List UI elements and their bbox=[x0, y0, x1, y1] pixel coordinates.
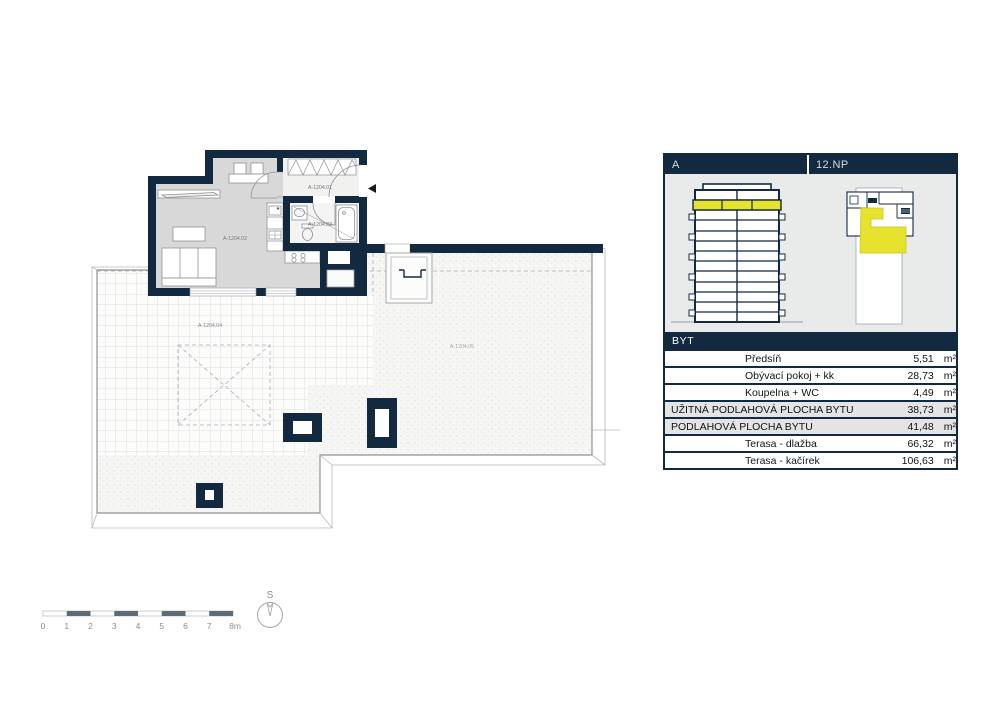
row-label: Terasa - kačírek bbox=[665, 455, 820, 467]
floor-plan-sheet: A-1204.01 A-1204.02 A-1204.03 A-1204.04 … bbox=[0, 0, 1000, 707]
panel-header: A 12.NP bbox=[665, 155, 956, 174]
row-unit: m² bbox=[944, 455, 956, 467]
table-row: Terasa - dlažba 66,32 m² bbox=[665, 434, 956, 451]
room-label-bath: A-1204.03 bbox=[308, 222, 332, 228]
floor-locator-diagram bbox=[809, 174, 954, 332]
table-row: Terasa - kačírek 106,63 m² bbox=[665, 451, 956, 468]
row-label: Koupelna + WC bbox=[665, 387, 819, 399]
row-value: 41,48 bbox=[907, 421, 940, 433]
scale-bar-labels: 0 1 2 3 4 5 6 7 8m bbox=[41, 621, 241, 631]
bathtub bbox=[336, 205, 357, 242]
table-row: Předsíň 5,51 m² bbox=[665, 349, 956, 366]
svg-text:3: 3 bbox=[112, 621, 117, 631]
row-value: 5,51 bbox=[913, 353, 940, 365]
row-unit: m² bbox=[944, 438, 956, 450]
north-compass-icon: S bbox=[258, 590, 283, 628]
building-label: A bbox=[672, 159, 680, 171]
row-value: 66,32 bbox=[907, 438, 940, 450]
row-value: 38,73 bbox=[907, 404, 940, 416]
compass-label: S bbox=[267, 590, 274, 601]
row-value: 28,73 bbox=[907, 370, 940, 382]
row-unit: m² bbox=[944, 404, 956, 416]
table-row: Koupelna + WC 4,49 m² bbox=[665, 383, 956, 400]
building-elevation-cell bbox=[665, 174, 809, 332]
table-title: BYT bbox=[672, 335, 694, 347]
exterior-box bbox=[327, 270, 354, 287]
room-label-living: A-1204.02 bbox=[223, 236, 247, 242]
row-unit: m² bbox=[944, 387, 956, 399]
row-value: 106,63 bbox=[902, 455, 941, 467]
entrance-arrow-icon bbox=[368, 184, 376, 193]
floor-plan-locator-cell bbox=[809, 174, 956, 332]
row-label: Obývací pokoj + kk bbox=[665, 370, 834, 382]
table-row: Obývací pokoj + kk 28,73 m² bbox=[665, 366, 956, 383]
stove bbox=[285, 251, 320, 263]
desk bbox=[229, 174, 268, 183]
row-unit: m² bbox=[944, 421, 956, 433]
svg-text:4: 4 bbox=[136, 621, 141, 631]
svg-text:0: 0 bbox=[41, 621, 46, 631]
row-label: PODLAHOVÁ PLOCHA BYTU bbox=[665, 421, 813, 433]
scale-bar: 0 1 2 3 4 5 6 7 8m bbox=[41, 611, 241, 631]
table-row: UŽITNÁ PODLAHOVÁ PLOCHA BYTU 38,73 m² bbox=[665, 400, 956, 417]
svg-text:6: 6 bbox=[183, 621, 188, 631]
svg-text:7: 7 bbox=[207, 621, 212, 631]
chair bbox=[234, 163, 246, 174]
room-label-terrace-gravel: A-1204.05 bbox=[450, 344, 474, 350]
building-header-cell: A bbox=[665, 155, 809, 174]
shaft-opening bbox=[328, 251, 350, 264]
floor-plan: A-1204.01 A-1204.02 A-1204.03 A-1204.04 … bbox=[80, 140, 640, 560]
chair bbox=[251, 163, 263, 174]
room-label-hall: A-1204.01 bbox=[308, 185, 332, 191]
svg-text:2: 2 bbox=[88, 621, 93, 631]
windows bbox=[190, 288, 296, 296]
sofa bbox=[162, 248, 216, 286]
room-label-terrace-tiles: A-1204.04 bbox=[198, 323, 222, 329]
row-label: Předsíň bbox=[665, 353, 781, 365]
apartment-unit bbox=[148, 150, 376, 296]
row-value: 4,49 bbox=[913, 387, 940, 399]
svg-text:1: 1 bbox=[64, 621, 69, 631]
coffee-table bbox=[173, 227, 205, 241]
panel-diagrams bbox=[665, 174, 956, 332]
scale-and-compass: 0 1 2 3 4 5 6 7 8m S bbox=[30, 585, 300, 640]
wardrobe bbox=[288, 159, 356, 175]
row-label: UŽITNÁ PODLAHOVÁ PLOCHA BYTU bbox=[665, 404, 854, 416]
row-unit: m² bbox=[944, 370, 956, 382]
kitchen-counter bbox=[267, 203, 283, 251]
table-title-bar: BYT bbox=[665, 332, 956, 349]
floor-header-cell: 12.NP bbox=[809, 155, 956, 174]
highlighted-floor bbox=[693, 200, 781, 210]
rooftop-structure bbox=[386, 253, 432, 303]
floor-label: 12.NP bbox=[816, 159, 849, 171]
svg-text:8m: 8m bbox=[229, 621, 241, 631]
building-elevation-diagram bbox=[665, 174, 809, 332]
table-row: PODLAHOVÁ PLOCHA BYTU 41,48 m² bbox=[665, 417, 956, 434]
row-unit: m² bbox=[944, 353, 956, 365]
byt-table-rows: Předsíň 5,51 m² Obývací pokoj + kk 28,73… bbox=[665, 349, 956, 468]
svg-text:5: 5 bbox=[159, 621, 164, 631]
unit-info-panel: A 12.NP bbox=[663, 153, 958, 470]
row-label: Terasa - dlažba bbox=[665, 438, 817, 450]
